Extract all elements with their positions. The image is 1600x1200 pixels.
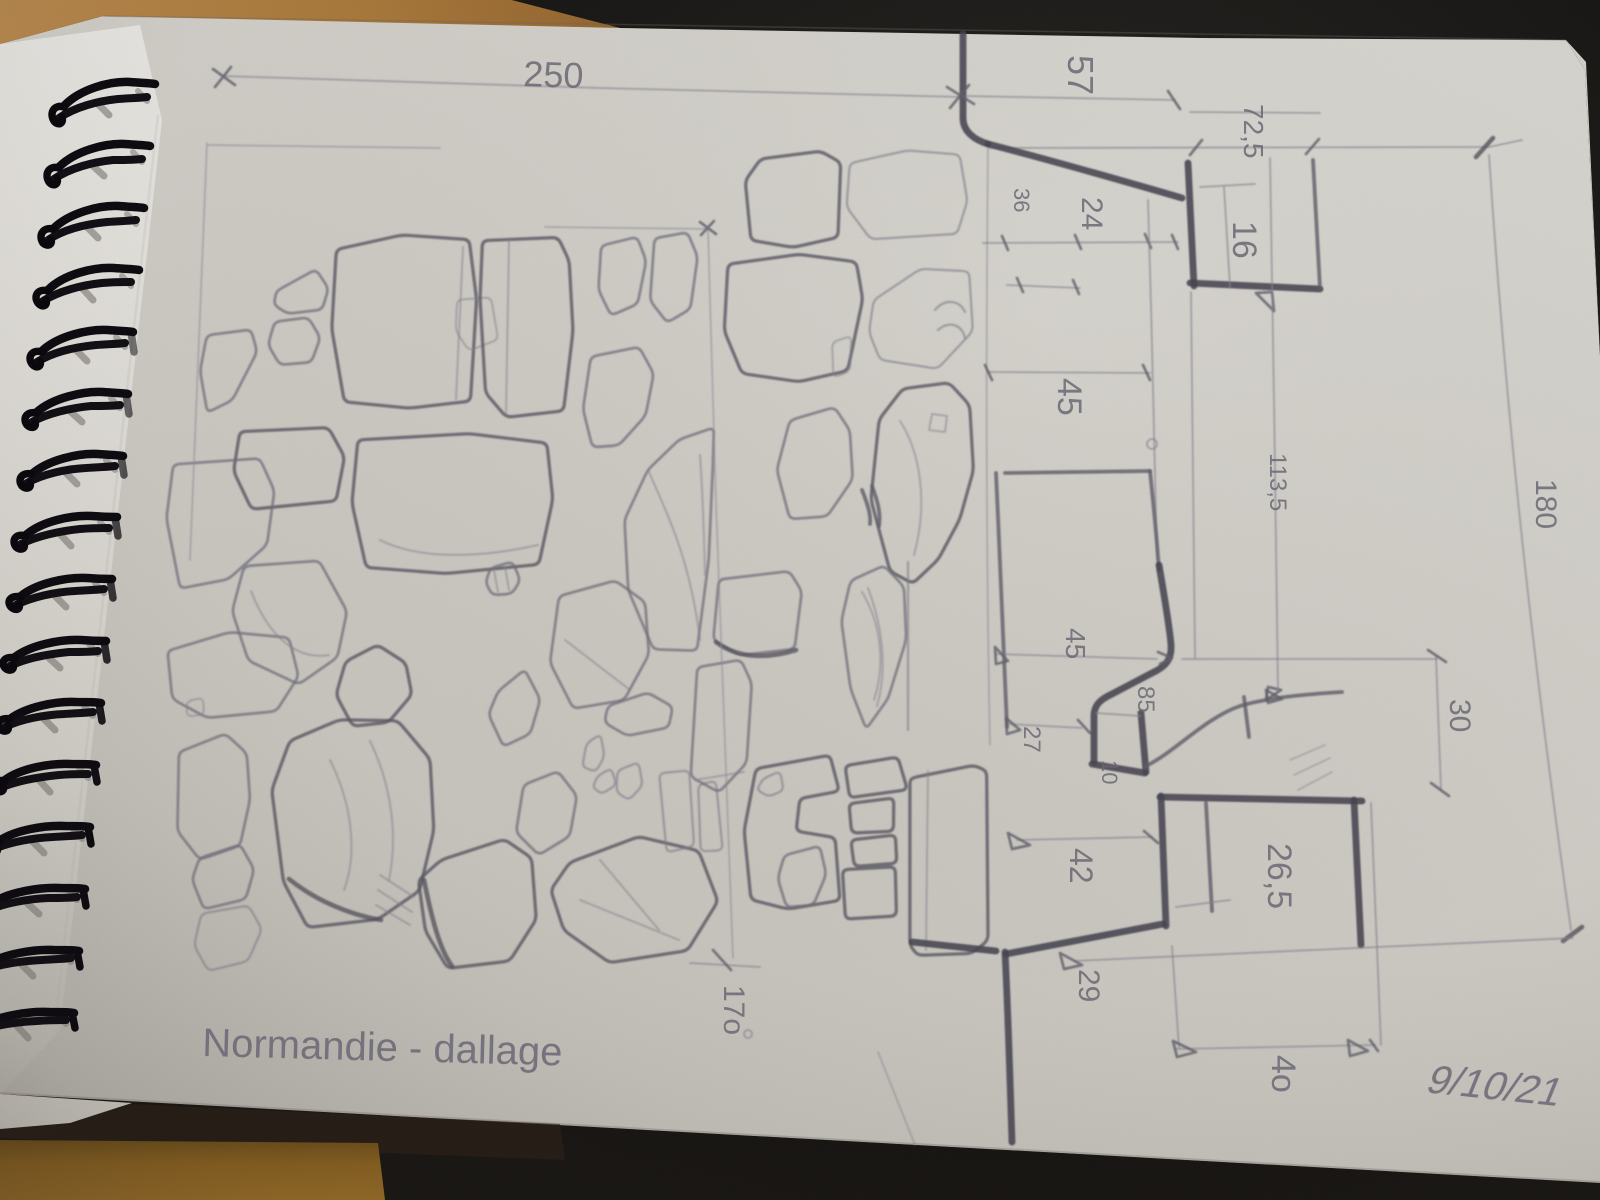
svg-text:26,5: 26,5 [1260,843,1298,909]
svg-text:180: 180 [1529,479,1562,529]
svg-text:27: 27 [1018,726,1045,753]
svg-text:17o: 17o [717,985,750,1035]
svg-text:85: 85 [1132,686,1159,713]
svg-text:42: 42 [1063,848,1099,884]
svg-text:4o: 4o [1264,1055,1302,1093]
svg-text:36: 36 [1009,188,1034,212]
svg-text:113,5: 113,5 [1264,453,1291,511]
svg-text:45: 45 [1060,628,1091,659]
svg-text:10: 10 [1097,760,1122,784]
svg-text:250: 250 [523,53,584,96]
svg-text:24: 24 [1075,197,1108,230]
svg-text:72,5: 72,5 [1238,104,1269,159]
svg-text:16: 16 [1225,221,1263,259]
svg-text:45: 45 [1050,378,1088,416]
svg-text:57: 57 [1060,55,1101,95]
svg-text:30: 30 [1443,699,1476,732]
svg-text:29: 29 [1072,969,1105,1002]
svg-text:Normandie - dallage: Normandie - dallage [202,1021,563,1074]
